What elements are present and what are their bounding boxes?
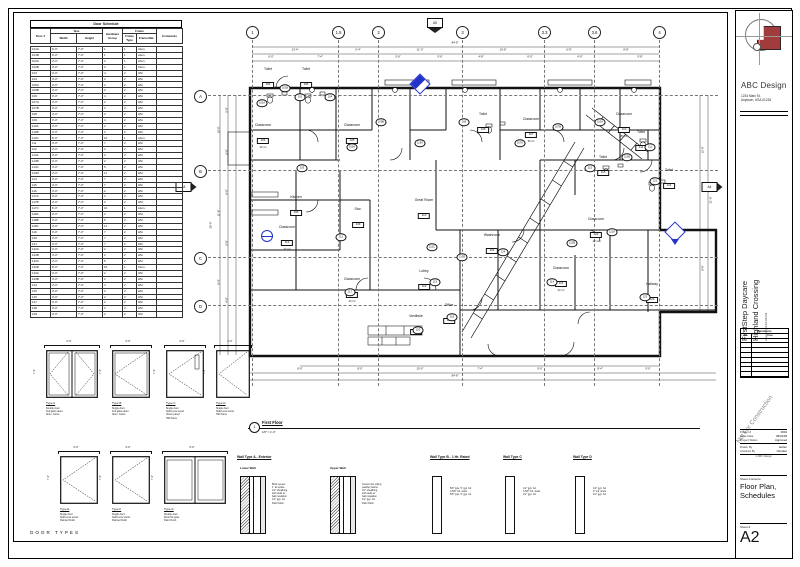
logo-crosshair-h [736, 36, 792, 37]
dimension-text: 5'-0" [226, 149, 229, 154]
door-type-dim-line [58, 451, 100, 455]
door-type-width-dim: 3'-0" [158, 340, 206, 343]
revisions-col-no: No. [741, 334, 752, 338]
grid-bubble: B [194, 165, 207, 178]
wall-gyp-layer [261, 477, 265, 533]
schedule-row: 1293'-0"7'-0"22HM [31, 312, 183, 318]
door-type-width-dim: 3'-0" [104, 340, 152, 343]
room-name: Toilet [663, 169, 675, 173]
door-schedule-rows: 101A6'-0"7'-0"11Alum.101B6'-0"7'-0"11Alu… [30, 46, 183, 318]
room-area: 24 m² [344, 300, 360, 303]
door-type-width-dim: 3'-0" [104, 446, 152, 449]
door-type-note-line: HM frame [216, 413, 234, 416]
revisions-cell [752, 367, 788, 371]
wall-note-line: 5/8" type 'X' gyp. bd. [450, 493, 472, 496]
room-label: Great Room113 [415, 199, 433, 221]
door-type-elevation [166, 350, 204, 398]
door-tag: 110A [595, 118, 606, 126]
wall-stud-layer [344, 477, 351, 533]
wall-type-notes: Cement bd. sidingweather barrier1/2" she… [362, 483, 381, 505]
schedule-cell: 129 [31, 312, 51, 318]
door-type-note-line: Painted finish [60, 519, 78, 522]
wall-insulation-hatch [331, 477, 340, 533]
titleblock-footer-note: © ABC Design [740, 454, 787, 459]
wall-type-notes: 1/2" gyp. bd.6" mtl. studs1/2" gyp. bd. [593, 487, 606, 496]
field-label: Checked By [740, 449, 755, 453]
revisions-table: RevisionsNo.Date [740, 328, 789, 378]
grid-line [252, 40, 253, 386]
door-tag: 113A [415, 139, 426, 147]
grid-line [462, 40, 463, 386]
dimension-text: 11'-0" [417, 49, 424, 52]
room-name: Classroom [616, 113, 632, 117]
grid-bubble: 4 [653, 26, 666, 39]
revisions-cell [752, 353, 788, 357]
room-label: Toilet121 [663, 169, 675, 191]
door-type-note-line: Paint finish [164, 519, 179, 522]
room-area: 87 m² [616, 135, 632, 138]
wall-type-title: Wall Type B - 1 Hr. Rated [430, 455, 470, 459]
dimension-text: 6'-0" [268, 56, 273, 59]
door-type-elevation [164, 456, 226, 504]
dimension-text: 11'-6" [218, 210, 221, 217]
grid-line [208, 95, 718, 96]
drawing-sheet: 11.5233.33.64ABCDToilet102Toilet104Class… [0, 0, 800, 567]
logo-crosshair-v [759, 13, 760, 65]
dimension-text: 5'-6" [395, 56, 400, 59]
room-area: 22 m² [279, 248, 295, 251]
door-type-label: Type E [60, 507, 69, 511]
door-tag: 110B [622, 153, 633, 161]
door-tag: 101B [280, 84, 291, 92]
section-marker-sheet: A5 [427, 18, 443, 28]
titleblock-field: Checked ByChecker [740, 449, 787, 453]
door-type-height-dim: 7'-0" [153, 369, 156, 374]
door-tag: 121 [650, 177, 661, 185]
wall-section-graphic [575, 476, 585, 534]
door-type-elevation [112, 350, 150, 398]
room-name: Washroom [484, 234, 500, 238]
revisions-cell [741, 358, 752, 362]
divider [740, 111, 788, 112]
dimension-text: 5'-8" [637, 56, 642, 59]
dimension-text: 5'-6" [437, 56, 442, 59]
grid-bubble: C [194, 252, 207, 265]
door-type-width-dim: 6'-0" [156, 446, 228, 449]
wall-assembly-label: Lower Wall [240, 466, 256, 470]
room-label: Classroom12242 m² [588, 218, 604, 243]
wall-assembly-label: Upper Wall [330, 466, 346, 470]
door-type-width-dim: 3'-0" [208, 340, 252, 343]
revisions-cell [741, 363, 752, 367]
door-schedule-title: Door Schedule [30, 20, 182, 28]
dimension-text: 84'-8" [452, 42, 459, 45]
room-name: Classroom [279, 226, 295, 230]
room-label: Toilet115 [597, 156, 609, 178]
wall-type-notes: 5/8" type 'X' gyp. bd.3-5/8" mtl. studs5… [450, 487, 472, 496]
room-label: Stor.109 [352, 208, 364, 230]
wall-gyp-layer [351, 477, 355, 533]
schedule-column-header: Comments [157, 29, 183, 44]
dimension-text: 6'-0" [527, 56, 532, 59]
door-type-notes: Double doorFull glass alum.Alum. frame [46, 407, 63, 417]
door-schedule-header: Door #SizeHardware GroupFrameCommentsWid… [30, 28, 183, 44]
wall-note-line: 1/2" gyp. bd. [523, 493, 540, 496]
door-tag: 105A [347, 143, 358, 151]
door-type-label: Type F [112, 507, 121, 511]
schedule-column-header: Height [77, 34, 103, 43]
grid-bubble: 1 [246, 26, 259, 39]
room-name: Classroom [344, 124, 360, 128]
revisions-cell [752, 339, 788, 343]
elevation-marker-arrow [671, 239, 679, 245]
door-tag: 101A [257, 99, 268, 107]
revisions-cell [741, 339, 752, 343]
door-type-note-line: HM frame [166, 417, 184, 420]
dimension-text: 5'-0" [226, 107, 229, 112]
room-number-tag: 113 [418, 213, 430, 219]
grid-line [594, 40, 595, 386]
section-marker-arrow [718, 183, 723, 191]
door-tag: 119 [430, 278, 441, 286]
door-type-notes: Single doorSolid core woodVision panelHM… [166, 407, 184, 420]
door-type-label: Type B [112, 401, 121, 405]
door-tag: 114 [547, 278, 558, 286]
view-title: First Floor [262, 420, 283, 425]
callout-marker-icon [261, 230, 273, 242]
grid-bubble: 3 [456, 26, 469, 39]
grid-bubble: 3.6 [588, 26, 601, 39]
door-tag: 115 [585, 164, 596, 172]
room-area: 24 m² [553, 289, 569, 292]
room-name: Toilet [597, 156, 609, 160]
door-type-height-dim: 7'-0" [99, 475, 102, 480]
room-label: Toilet106 [477, 113, 489, 135]
door-type-dim-line [44, 345, 100, 349]
room-label: Toilet104 [300, 68, 312, 90]
project-name-line1: FirstStep Daycare [740, 141, 749, 341]
revisions-cell [752, 363, 788, 367]
door-tag: 106 [459, 118, 470, 126]
room-name: Classroom [344, 278, 360, 282]
door-type-elevation [60, 456, 98, 504]
door-type-card: 3'-0"7'-0"Type BSingle doorFull glass al… [104, 340, 152, 440]
door-tag: 104 [325, 93, 336, 101]
grid-line [338, 40, 339, 386]
revisions-cell [752, 343, 788, 347]
section-marker-icon: A5 [427, 18, 443, 33]
door-tag: 120 [413, 326, 424, 334]
door-type-note-line: Alum. frame [46, 413, 63, 416]
schedule-cell [157, 312, 183, 318]
dimension-text: 5'-0" [645, 368, 650, 371]
dimension-text: 10'-0" [417, 368, 424, 371]
room-name: Kitchen [290, 196, 302, 200]
dimension-text: 10'-0" [218, 127, 221, 134]
door-type-notes: Single doorSolid core woodHM frame [216, 407, 234, 417]
door-tag: 124 [498, 248, 509, 256]
section-marker-arrow [428, 28, 442, 33]
room-label: Classroom10142 m² [255, 124, 271, 149]
logo-dot [753, 43, 761, 51]
dimension-text: 10'-8" [500, 49, 507, 52]
dimension-text: 4'-8" [478, 56, 483, 59]
room-number-tag: 121 [663, 183, 675, 189]
room-name: Toilet [262, 68, 274, 72]
door-type-card: 3'-0"7'-0"Type FSingle doorSolid core wo… [104, 446, 152, 546]
door-type-label: Type A [46, 401, 55, 405]
firm-address-line2: Anytown, USA 01234 [741, 98, 771, 102]
project-address: Anytown, USA 01234 [764, 161, 768, 341]
dimension-text: 8'-0" [297, 368, 302, 371]
door-type-width-dim: 6'-0" [38, 340, 100, 343]
door-tag: 102 [295, 93, 306, 101]
revisions-cell [741, 343, 752, 347]
room-name: Classroom [588, 218, 604, 222]
door-type-dim-line [214, 345, 252, 349]
wall-section-graphic [432, 476, 442, 534]
elevation-marker-fill [411, 75, 425, 89]
room-label: Kitchen103 [290, 196, 302, 218]
grid-bubble: 2 [372, 26, 385, 39]
titleblock-field: Project StatusApproved [740, 438, 787, 442]
wall-type-title: Wall Type A - Exterior [237, 455, 271, 459]
room-label: Lobby119 [418, 270, 430, 292]
door-type-card: 3'-0"7'-0"Type CSingle doorSolid core wo… [158, 340, 206, 440]
dimension-text: 5'-6" [226, 240, 229, 245]
wall-note-line: 1/2" gyp. bd. [593, 493, 606, 496]
dimension-text: 8'-8" [623, 49, 628, 52]
room-number-tag: 106 [477, 127, 489, 133]
firm-address: 1234 Main St. Anytown, USA 01234 [741, 94, 771, 102]
wall-section-graphic [240, 476, 266, 534]
room-number-tag: 102 [262, 82, 274, 88]
door-schedule: Door Schedule Door #SizeHardware GroupFr… [30, 20, 182, 318]
door-tag: 111 [645, 143, 656, 151]
door-type-height-dim: 7'-0" [99, 369, 102, 374]
grid-bubble: 3.3 [538, 26, 551, 39]
sheet-contents: Floor Plan, Schedules [740, 482, 776, 500]
dimension-text: 8'-0" [357, 368, 362, 371]
room-number-tag: 112 [281, 240, 293, 246]
room-name: Classroom [255, 124, 271, 128]
door-tag: 117 [345, 288, 356, 296]
room-area: 42 m² [255, 146, 271, 149]
door-tag: 103 [297, 164, 308, 172]
door-type-dim-line [162, 451, 228, 455]
sheet-contents-line2: Schedules [740, 491, 776, 500]
door-type-dim-line [164, 345, 206, 349]
revisions-cell [741, 372, 752, 376]
schedule-cell: 3'-0" [51, 312, 77, 318]
view-scale: 1/8" = 1'-0" [262, 430, 276, 434]
room-name: Office [443, 304, 455, 308]
door-type-dim-line [110, 451, 152, 455]
grid-line [208, 170, 718, 171]
door-type-elevation [112, 456, 150, 504]
section-marker-row: A4 [702, 182, 723, 192]
schedule-cell: 2 [123, 312, 137, 318]
section-marker-icon: A4 [702, 182, 723, 192]
schedule-cell: HM [137, 312, 157, 318]
sheet-contents-label: Sheet Contents [740, 475, 787, 481]
room-name: Toilet [477, 113, 489, 117]
room-name: Stor. [352, 208, 364, 212]
door-type-note-line: Alum. frame [112, 413, 129, 416]
schedule-column-header: Frame Mat. [137, 34, 157, 43]
elevation-marker-icon [409, 73, 430, 94]
dimension-text: 4'-0" [577, 56, 582, 59]
sheet-contents-line1: Floor Plan, [740, 482, 776, 491]
room-label: Classroom11222 m² [279, 226, 295, 251]
room-label: Classroom11087 m² [616, 113, 632, 138]
room-number-tag: 101 [257, 138, 269, 144]
wall-note-line: Paint finish [362, 502, 381, 505]
dimension-text: 7'-4" [317, 56, 322, 59]
wall-insulation-hatch [241, 477, 250, 533]
dimension-text: 6'-4" [218, 279, 221, 284]
revisions-cell [752, 358, 788, 362]
room-number-tag: 103 [290, 210, 302, 216]
dimension-text: 8'-4" [597, 368, 602, 371]
section-marker-arrow [192, 183, 197, 191]
project-name-line2: Highland Crossing [751, 141, 760, 341]
room-number-tag: 124 [486, 248, 498, 254]
wall-type-notes: Brick veneer1" air space1/2" sheathing2x… [272, 483, 287, 505]
titleblock-fields: Project #0601Issue Date06/01/06Project S… [740, 429, 787, 459]
door-type-width-dim: 3'-0" [52, 446, 100, 449]
revisions-col-date: Date [752, 334, 788, 338]
room-name: Classroom [553, 267, 569, 271]
dimension-text: 7'-4" [477, 368, 482, 371]
door-tag: 123 [640, 293, 651, 301]
schedule-cell: 2 [103, 312, 123, 318]
dimension-text: 6'-0" [226, 189, 229, 194]
door-type-height-dim: 7'-0" [33, 369, 36, 374]
room-name: Toilet [635, 131, 646, 135]
grid-bubble: D [194, 300, 207, 313]
grid-line [544, 40, 545, 386]
door-type-notes: Double doorWood bi-passPaint finish [164, 513, 179, 523]
room-area: 42 m² [588, 240, 604, 243]
schedule-column-header: Width [51, 34, 77, 43]
field-value: Approved [775, 438, 787, 442]
section-marker-sheet: A4 [702, 182, 718, 192]
schedule-cell: 7'-0" [77, 312, 103, 318]
schedule-column-header: Frame Type [123, 34, 137, 43]
room-label: Toilet102 [262, 68, 274, 90]
wall-section-graphic [505, 476, 515, 534]
room-number-tag: 122 [590, 232, 602, 238]
dimension-text: 4'-8" [226, 297, 229, 302]
wall-type-title: Wall Type C [503, 455, 522, 459]
grid-line [208, 305, 718, 306]
revisions-empty-row [741, 372, 788, 377]
door-tag: 118 [447, 313, 458, 321]
dimension-text: 13'-4" [292, 49, 299, 52]
door-type-card: 6'-0"7'-0"Type GDouble doorWood bi-passP… [156, 446, 228, 546]
door-tag: 105B [376, 118, 387, 126]
revisions-cell [741, 348, 752, 352]
dimension-text: 21'-6" [710, 197, 713, 204]
door-type-height-dim: 7'-0" [203, 369, 206, 374]
room-name: Great Room [415, 199, 433, 203]
door-tag: 107A [515, 139, 526, 147]
door-type-dim-line [110, 345, 152, 349]
door-type-notes: Single doorSolid core woodPainted finish [112, 513, 130, 523]
door-types-caption: DOOR TYPES [30, 530, 80, 535]
field-value: Checker [777, 449, 787, 453]
room-name: Toilet [300, 68, 312, 72]
wall-note-line: Paint finish [272, 502, 287, 505]
revisions-cell [752, 372, 788, 376]
room-name: Vestibule [409, 315, 423, 319]
room-number-tag: 104 [300, 82, 312, 88]
door-type-label: Type G [164, 507, 174, 511]
door-tag: 122A [607, 228, 618, 236]
revisions-cell [741, 353, 752, 357]
dimension-text: 6'-8" [566, 49, 571, 52]
door-tag: 112 [336, 233, 347, 241]
room-name: Classroom [523, 118, 539, 122]
room-number-tag: 119 [418, 284, 430, 290]
door-type-elevation [216, 350, 250, 398]
dimension-text: 5'-4" [355, 49, 360, 52]
room-name: Lobby [418, 270, 430, 274]
revisions-cell [741, 367, 752, 371]
door-type-height-dim: 7'-0" [151, 475, 154, 480]
wall-type-title: Wall Type D [573, 455, 592, 459]
door-type-card: 3'-0"7'-0"Type DSingle doorSolid core wo… [208, 340, 252, 440]
schedule-column-header: Hardware Group [103, 29, 123, 44]
field-label: Project Status [740, 438, 757, 442]
door-type-elevation [46, 350, 98, 398]
grid-line [659, 40, 660, 386]
revisions-cell [752, 348, 788, 352]
door-type-notes: Single doorFull glass alum.Alum. frame [112, 407, 129, 417]
dimension-text: 9'-0" [537, 368, 542, 371]
door-tag: 113B [457, 253, 468, 261]
door-type-card: 6'-0"7'-0"Type ADouble doorFull glass al… [38, 340, 100, 440]
grid-bubble: 1.5 [332, 26, 345, 39]
door-type-note-line: Painted finish [112, 519, 130, 522]
callout-marker-line [262, 236, 272, 237]
door-type-notes: Single doorSolid core woodPainted finish [60, 513, 78, 523]
dimension-text: 84'-8" [452, 375, 459, 378]
divider [740, 115, 788, 116]
door-tag: 113C [427, 243, 438, 251]
wall-type-notes: 1/2" gyp. bd.3-5/8" mtl. studs1/2" gyp. … [523, 487, 540, 496]
door-type-label: Type D [216, 401, 226, 405]
schedule-column-header: Door # [31, 29, 51, 44]
sheet-number: A2 [740, 529, 760, 547]
room-number-tag: 109 [352, 222, 364, 228]
door-type-label: Type C [166, 401, 176, 405]
firm-name: ABC Design [736, 81, 797, 90]
wall-section-graphic [330, 476, 356, 534]
dimension-text: 12'-0" [702, 147, 705, 154]
wall-stud-layer [254, 477, 261, 533]
door-tag: 122B [567, 239, 578, 247]
room-number-tag: 110 [618, 127, 630, 133]
grid-bubble: A [194, 90, 207, 103]
room-label: Classroom10736 m² [523, 118, 539, 143]
grid-line [378, 40, 379, 386]
door-tag: 107B [553, 123, 564, 131]
room-name: Hallway [646, 283, 658, 287]
title-block: ABC Design 1234 Main St. Anytown, USA 01… [735, 10, 793, 559]
dimension-text: 35'-4" [210, 222, 213, 229]
